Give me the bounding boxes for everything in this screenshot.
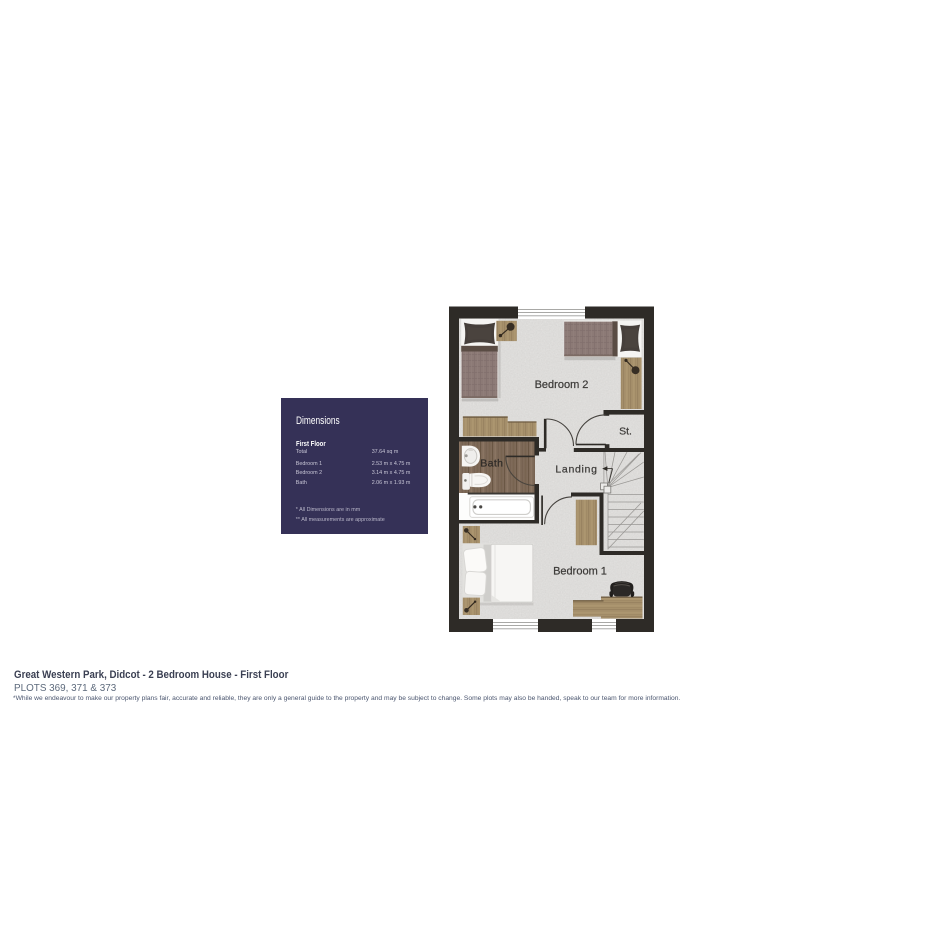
svg-text:St.: St. bbox=[619, 426, 632, 438]
svg-text:Bedroom 2: Bedroom 2 bbox=[535, 379, 589, 391]
svg-text:Bath: Bath bbox=[480, 458, 503, 470]
svg-text:Bedroom 1: Bedroom 1 bbox=[553, 566, 607, 578]
svg-text:Landing: Landing bbox=[555, 464, 597, 476]
